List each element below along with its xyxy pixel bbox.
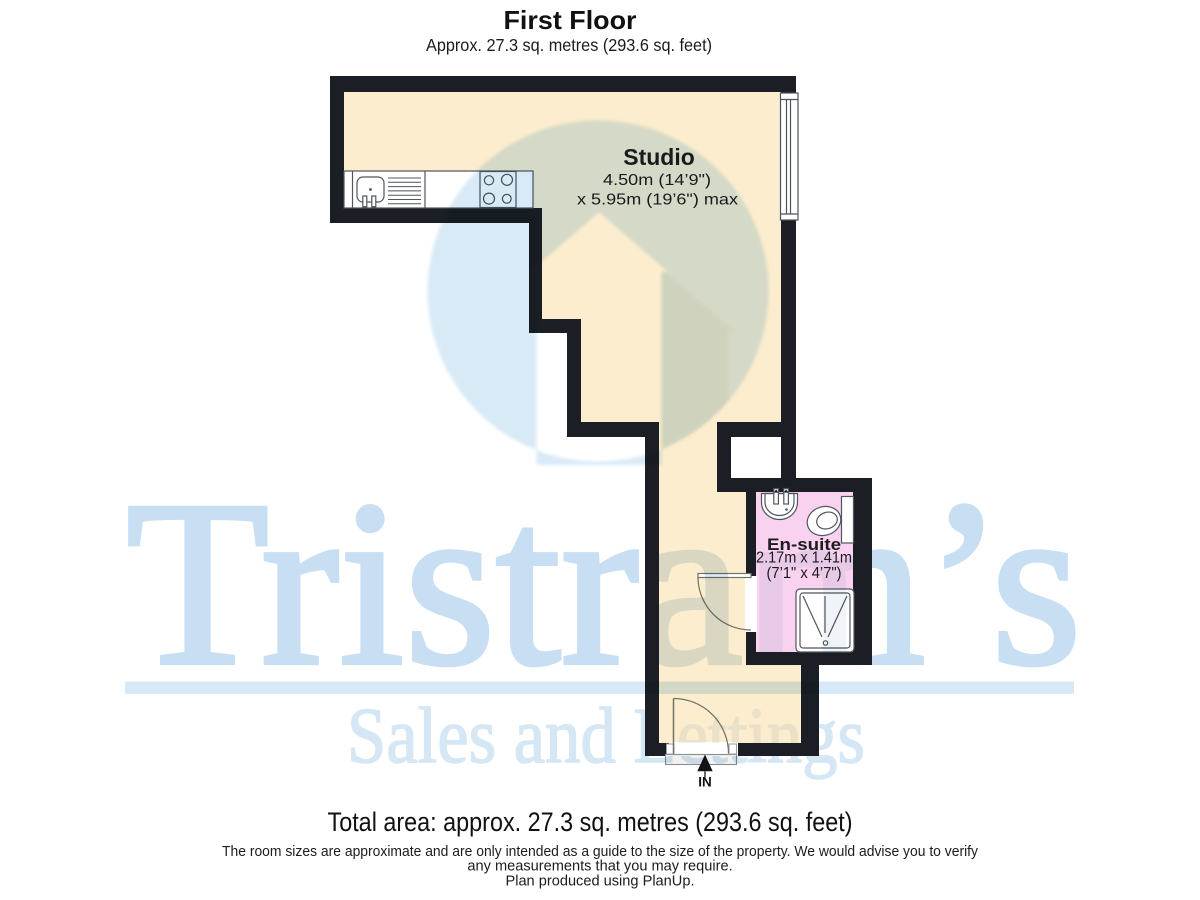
svg-text:Approx. 27.3 sq. metres (293.6: Approx. 27.3 sq. metres (293.6 sq. feet) bbox=[426, 35, 712, 55]
svg-text:Plan produced using PlanUp.: Plan produced using PlanUp. bbox=[505, 874, 694, 890]
svg-text:Total area: approx. 27.3 sq. m: Total area: approx. 27.3 sq. metres (293… bbox=[328, 807, 853, 837]
svg-text:any measurements that you may: any measurements that you may require. bbox=[467, 859, 732, 875]
svg-text:First Floor: First Floor bbox=[504, 5, 637, 35]
svg-text:Tristram’s: Tristram’s bbox=[126, 453, 1082, 715]
